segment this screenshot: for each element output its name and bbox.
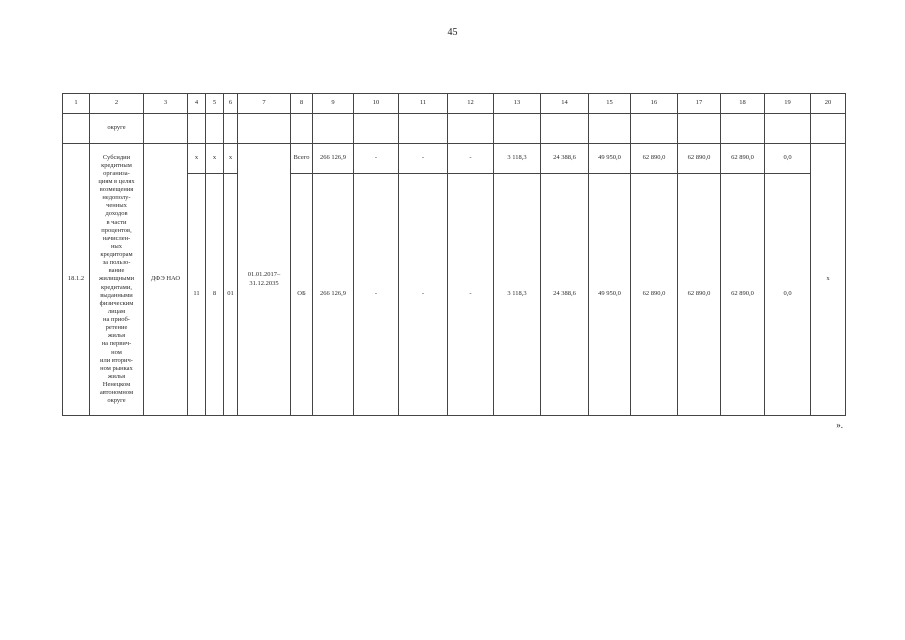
empty-cell xyxy=(238,114,291,144)
column-number-cell: 12 xyxy=(448,94,494,114)
amount-cell: 3 118,3 xyxy=(494,174,541,416)
column-number-cell: 5 xyxy=(206,94,224,114)
empty-cell xyxy=(541,114,589,144)
column-number-cell: 20 xyxy=(811,94,846,114)
column-number-cell: 2 xyxy=(90,94,144,114)
column-number-cell: 17 xyxy=(678,94,721,114)
empty-cell xyxy=(291,114,313,144)
column-number-cell: 13 xyxy=(494,94,541,114)
amount-cell: 62 890,0 xyxy=(678,174,721,416)
amount-cell: 0,0 xyxy=(765,174,811,416)
amount-cell: 24 388,6 xyxy=(541,144,589,174)
column-number-cell: 14 xyxy=(541,94,589,114)
code-cell: 11 xyxy=(188,174,206,416)
column-number-cell: 4 xyxy=(188,94,206,114)
amount-cell: 62 890,0 xyxy=(721,144,765,174)
dash-cell: - xyxy=(448,174,494,416)
executor: ДФЭ НАО xyxy=(144,144,188,416)
column-number-cell: 1 xyxy=(63,94,90,114)
empty-cell xyxy=(399,114,448,144)
empty-cell xyxy=(313,114,354,144)
implementation-period: 01.01.2017– 31.12.2035 xyxy=(238,144,291,416)
funding-source-label: Всего xyxy=(291,144,313,174)
dash-cell: - xyxy=(399,174,448,416)
empty-cell xyxy=(494,114,541,144)
column-number-cell: 8 xyxy=(291,94,313,114)
column-number-cell: 10 xyxy=(354,94,399,114)
empty-cell xyxy=(354,114,399,144)
closing-quote-mark: ». xyxy=(836,420,843,430)
empty-cell xyxy=(144,114,188,144)
amount-cell: 3 118,3 xyxy=(494,144,541,174)
empty-cell xyxy=(589,114,631,144)
dash-cell: - xyxy=(448,144,494,174)
amount-cell: 62 890,0 xyxy=(721,174,765,416)
empty-cell xyxy=(678,114,721,144)
amount-cell: 0,0 xyxy=(765,144,811,174)
column-number-cell: 19 xyxy=(765,94,811,114)
column-number-cell: 15 xyxy=(589,94,631,114)
empty-cell xyxy=(206,114,224,144)
empty-cell xyxy=(631,114,678,144)
dash-cell: - xyxy=(354,144,399,174)
column-number-cell: 7 xyxy=(238,94,291,114)
column-numbers-row: 1 2 3 4 5 6 7 8 9 10 11 12 13 14 15 16 1… xyxy=(63,94,846,114)
code-cell: х xyxy=(188,144,206,174)
code-cell: 01 xyxy=(224,174,238,416)
amount-cell: 266 126,9 xyxy=(313,144,354,174)
column-number-cell: 16 xyxy=(631,94,678,114)
column-number-cell: 6 xyxy=(224,94,238,114)
dash-cell: - xyxy=(354,174,399,416)
column-number-cell: 9 xyxy=(313,94,354,114)
amount-cell: 62 890,0 xyxy=(631,174,678,416)
empty-cell xyxy=(188,114,206,144)
empty-cell xyxy=(721,114,765,144)
row-18-1-2-total: 18.1.2 Субсидии кредитным организа- циям… xyxy=(63,144,846,174)
amount-cell: 49 950,0 xyxy=(589,174,631,416)
empty-cell xyxy=(224,114,238,144)
row-index: 18.1.2 xyxy=(63,144,90,416)
code-cell: 8 xyxy=(206,174,224,416)
amount-cell: 62 890,0 xyxy=(631,144,678,174)
carryover-text: округе xyxy=(90,114,144,144)
page-number: 45 xyxy=(0,27,905,38)
empty-cell xyxy=(765,114,811,144)
column-number-cell: 18 xyxy=(721,94,765,114)
funding-source-label: ОБ xyxy=(291,174,313,416)
flag-cell: х xyxy=(811,144,846,416)
empty-cell xyxy=(448,114,494,144)
measure-title: Субсидии кредитным организа- циям в целя… xyxy=(90,144,144,416)
amount-cell: 49 950,0 xyxy=(589,144,631,174)
dash-cell: - xyxy=(399,144,448,174)
program-financing-table: 1 2 3 4 5 6 7 8 9 10 11 12 13 14 15 16 1… xyxy=(62,93,846,416)
carryover-row: округе xyxy=(63,114,846,144)
amount-cell: 24 388,6 xyxy=(541,174,589,416)
column-number-cell: 11 xyxy=(399,94,448,114)
amount-cell: 62 890,0 xyxy=(678,144,721,174)
code-cell: х xyxy=(224,144,238,174)
amount-cell: 266 126,9 xyxy=(313,174,354,416)
column-number-cell: 3 xyxy=(144,94,188,114)
code-cell: х xyxy=(206,144,224,174)
empty-cell xyxy=(811,114,846,144)
empty-cell xyxy=(63,114,90,144)
